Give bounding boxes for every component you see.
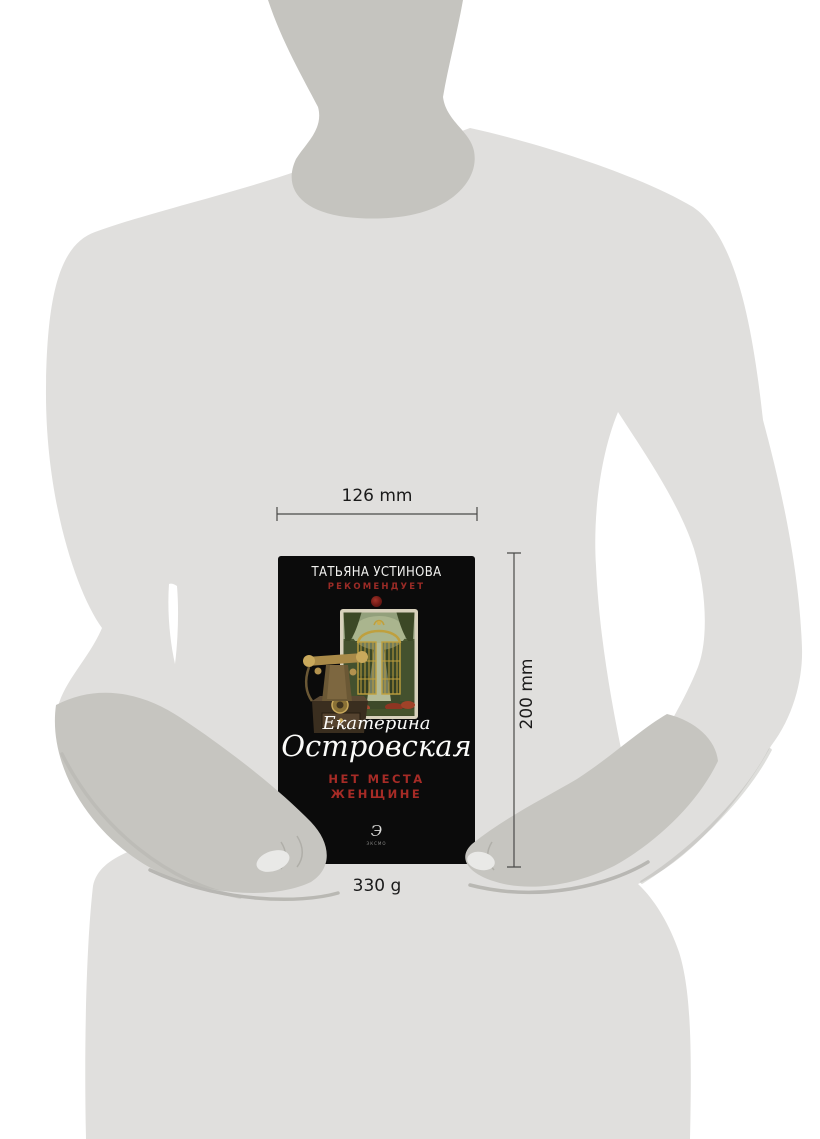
weight-label: 330 g xyxy=(317,876,437,896)
product-dimension-illustration: ТАТЬЯНА УСТИНОВА РЕКОМЕНДУЕТ xyxy=(0,0,820,1139)
dimension-lines xyxy=(0,0,820,1139)
width-label: 126 mm xyxy=(317,486,437,506)
width-dimension-line xyxy=(277,507,477,521)
height-label: 200 mm xyxy=(517,634,537,754)
